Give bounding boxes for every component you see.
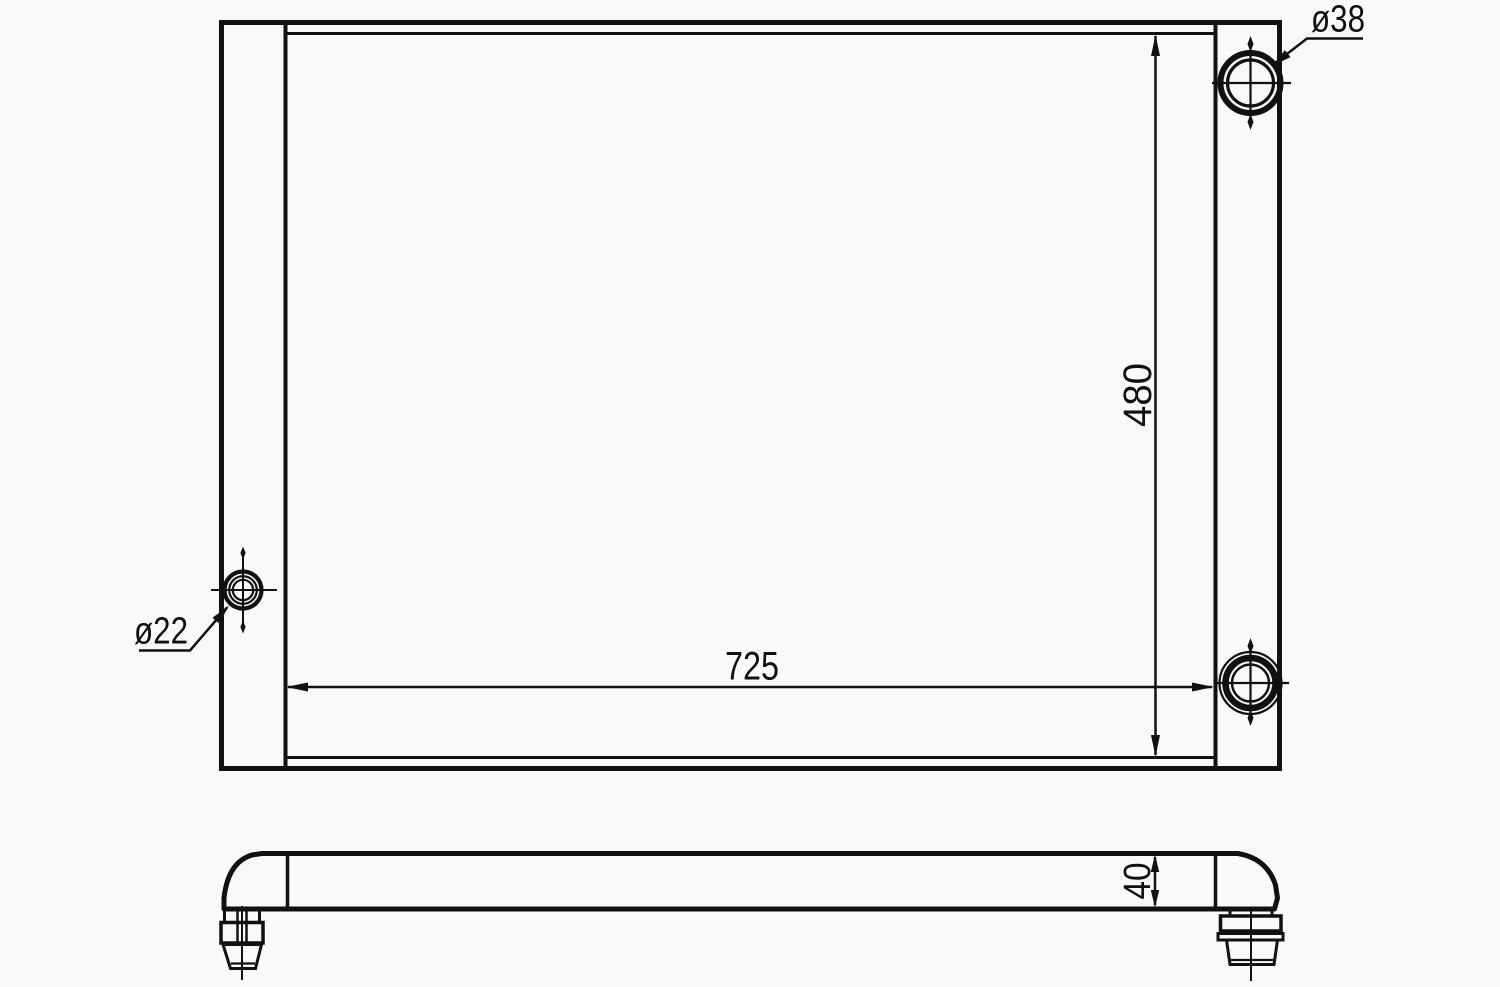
- center-mark-diamond: [1248, 36, 1254, 52]
- center-mark-diamond: [1248, 114, 1254, 130]
- center-mark-diamond: [1248, 710, 1254, 726]
- leader-38: ø38: [1272, 0, 1365, 66]
- drawing-canvas: ø38 ø22 480 725: [0, 0, 1500, 987]
- right-fitting: [1218, 908, 1283, 981]
- radiator-drawing: ø38 ø22 480 725: [0, 0, 1500, 987]
- dim-label-port38: ø38: [1311, 0, 1365, 41]
- dim725-arrow-right: [1192, 683, 1214, 692]
- dim-40: 40: [1117, 855, 1159, 908]
- dim-label-480: 480: [1116, 363, 1160, 427]
- dim-480: 480: [1116, 35, 1160, 757]
- left-fitting: [221, 906, 263, 980]
- center-mark-diamond: [240, 547, 245, 560]
- dim480-arrow-down: [1151, 735, 1160, 757]
- leader38-line: [1274, 39, 1363, 65]
- dim-label-40: 40: [1117, 863, 1159, 900]
- dim-725: 725: [286, 645, 1214, 692]
- leader-22: ø22: [134, 606, 229, 653]
- dim-label-725: 725: [725, 645, 779, 689]
- dim725-arrow-left: [286, 683, 308, 692]
- dim480-arrow-up: [1151, 35, 1160, 57]
- bottom-view: 40: [221, 854, 1283, 982]
- center-mark-diamond: [240, 621, 245, 634]
- dim-label-port22: ø22: [134, 611, 188, 653]
